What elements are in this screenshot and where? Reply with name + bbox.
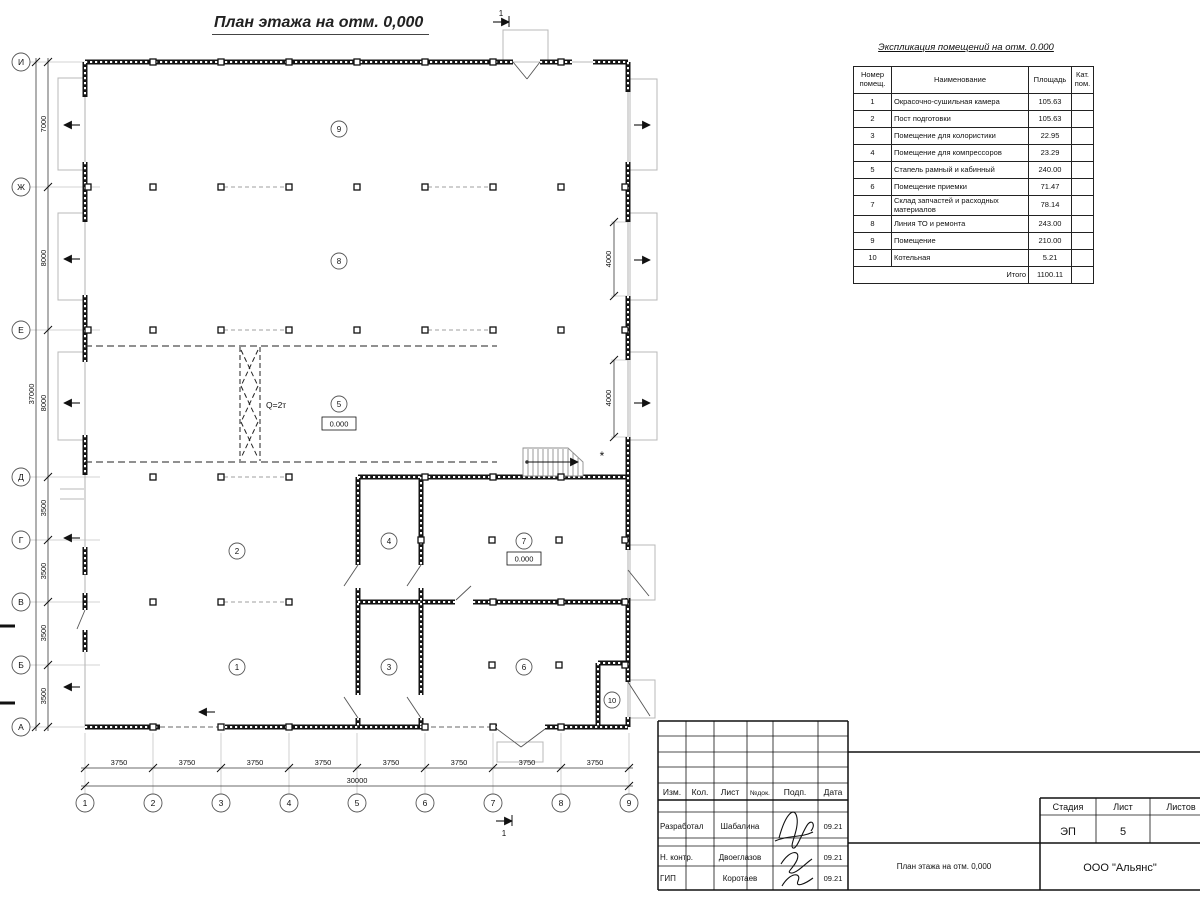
table-row: 8Линия ТО и ремонта243.00 bbox=[854, 216, 1094, 233]
table-cell: Склад запчастей и расходных материалов bbox=[892, 196, 1029, 216]
dim-label: 3750 bbox=[519, 758, 536, 767]
dim-label-gate: 4000 bbox=[604, 251, 613, 268]
dim-label: 3750 bbox=[315, 758, 332, 767]
dim-label: 3750 bbox=[179, 758, 196, 767]
table-cell: Помещение bbox=[892, 233, 1029, 250]
table-cell: 105.63 bbox=[1029, 111, 1072, 128]
room-number: 7 bbox=[522, 537, 527, 546]
total-value: 1100.11 bbox=[1029, 267, 1072, 284]
column-marker bbox=[422, 327, 428, 333]
table-cell: 10 bbox=[854, 250, 892, 267]
table-row: 7Склад запчастей и расходных материалов7… bbox=[854, 196, 1094, 216]
table-cell: 105.63 bbox=[1029, 94, 1072, 111]
table-cell bbox=[1072, 128, 1094, 145]
table-cell bbox=[1072, 179, 1094, 196]
column-marker bbox=[622, 184, 628, 190]
tb-name: Коротаев bbox=[723, 874, 758, 883]
table-cell: Помещение для компрессоров bbox=[892, 145, 1029, 162]
table-cell bbox=[1072, 111, 1094, 128]
column-marker bbox=[218, 474, 224, 480]
tb-role: Н. контр. bbox=[660, 853, 693, 862]
dim-label: 8000 bbox=[39, 395, 48, 412]
column-marker bbox=[286, 59, 292, 65]
table-cell: 243.00 bbox=[1029, 216, 1072, 233]
dim-label: 3500 bbox=[39, 625, 48, 642]
column-marker bbox=[490, 724, 496, 730]
column-marker bbox=[558, 474, 564, 480]
table-cell: 5 bbox=[854, 162, 892, 179]
column-marker bbox=[85, 184, 91, 190]
axis-label: 6 bbox=[423, 798, 428, 808]
dim-label: 3750 bbox=[247, 758, 264, 767]
axis-label: В bbox=[18, 597, 24, 607]
table-row: 6Помещение приемки71.47 bbox=[854, 179, 1094, 196]
column-marker bbox=[558, 184, 564, 190]
axis-label: Б bbox=[18, 660, 24, 670]
table-cell: 78.14 bbox=[1029, 196, 1072, 216]
tb-role: ГИП bbox=[660, 874, 676, 883]
room-number: 3 bbox=[387, 663, 392, 672]
tb-col-header: №док. bbox=[750, 790, 770, 797]
column-marker bbox=[422, 59, 428, 65]
plan-annotations: 0.000 0.000 Q=2т * 1 1 bbox=[0, 9, 605, 838]
axis-label: И bbox=[18, 57, 24, 67]
table-row: 10Котельная5.21 bbox=[854, 250, 1094, 267]
tb-date: 09.21 bbox=[824, 822, 843, 831]
room-number: 10 bbox=[608, 696, 616, 705]
table-cell: Пост подготовки bbox=[892, 111, 1029, 128]
column-marker bbox=[286, 327, 292, 333]
column-marker bbox=[218, 724, 224, 730]
tb-date: 09.21 bbox=[824, 874, 843, 883]
table-cell: 240.00 bbox=[1029, 162, 1072, 179]
column-marker bbox=[490, 474, 496, 480]
table-cell: 9 bbox=[854, 233, 892, 250]
axis-label: 7 bbox=[491, 798, 496, 808]
staircase bbox=[523, 448, 583, 476]
column-marker bbox=[218, 184, 224, 190]
table-cell bbox=[1072, 162, 1094, 179]
drawing-sheet: План этажа на отм. 0,000 Экспликация пом… bbox=[0, 0, 1200, 900]
axis-label: А bbox=[18, 722, 24, 732]
walls bbox=[85, 62, 628, 727]
table-row: 1Окрасочно-сушильная камера105.63 bbox=[854, 94, 1094, 111]
signature bbox=[775, 812, 813, 848]
dim-label: 3500 bbox=[39, 688, 48, 705]
door-swings bbox=[77, 62, 650, 747]
column-marker bbox=[489, 537, 495, 543]
column-marker bbox=[558, 59, 564, 65]
table-cell: 7 bbox=[854, 196, 892, 216]
table-cell: 5.21 bbox=[1029, 250, 1072, 267]
column-marker bbox=[150, 599, 156, 605]
column-marker bbox=[490, 599, 496, 605]
tb-doc-title: План этажа на отм. 0,000 bbox=[897, 862, 992, 871]
room-number: 5 bbox=[337, 400, 342, 409]
tb-name: Шабалина bbox=[721, 822, 760, 831]
axis-label: 2 bbox=[151, 798, 156, 808]
dim-label-gate: 4000 bbox=[604, 390, 613, 407]
table-cell: Котельная bbox=[892, 250, 1029, 267]
col-header-name: Наименование bbox=[892, 67, 1029, 94]
tb-sheet-label: Лист bbox=[1113, 802, 1133, 812]
crane-capacity-label: Q=2т bbox=[266, 400, 286, 410]
column-marker bbox=[422, 474, 428, 480]
axis-label: Е bbox=[18, 325, 24, 335]
axis-label: Д bbox=[18, 472, 24, 482]
column-marker bbox=[489, 662, 495, 668]
table-cell: Помещение для колористики bbox=[892, 128, 1029, 145]
dim-label: 3750 bbox=[111, 758, 128, 767]
column-marker bbox=[150, 59, 156, 65]
column-marker bbox=[354, 59, 360, 65]
table-cell bbox=[1072, 250, 1094, 267]
column-marker bbox=[558, 327, 564, 333]
table-cell: 1 bbox=[854, 94, 892, 111]
axis-label: 1 bbox=[83, 798, 88, 808]
column-marker bbox=[150, 184, 156, 190]
table-row: 3Помещение для колористики22.95 bbox=[854, 128, 1094, 145]
column-marker bbox=[422, 724, 428, 730]
dim-label: 3750 bbox=[383, 758, 400, 767]
table-cell: 2 bbox=[854, 111, 892, 128]
crane-lattice bbox=[241, 350, 258, 458]
column-marker bbox=[218, 599, 224, 605]
level-mark: 0.000 bbox=[515, 555, 534, 564]
dim-label: 7000 bbox=[39, 116, 48, 133]
tb-col-header: Дата bbox=[824, 787, 843, 797]
column-marker bbox=[490, 327, 496, 333]
column-marker bbox=[286, 184, 292, 190]
table-row: 9Помещение210.00 bbox=[854, 233, 1094, 250]
column-marker bbox=[218, 59, 224, 65]
tb-company: ООО "Альянс" bbox=[1083, 862, 1157, 874]
col-header-category: Кат. пом. bbox=[1072, 67, 1094, 94]
column-marker bbox=[150, 327, 156, 333]
table-cell bbox=[1072, 145, 1094, 162]
level-mark: 0.000 bbox=[330, 420, 349, 429]
tb-date: 09.21 bbox=[824, 853, 843, 862]
axis-bubbles-cols: 1 2 3 4 5 6 7 8 9 bbox=[76, 794, 638, 812]
column-marker bbox=[558, 599, 564, 605]
table-row: 5Стапель рамный и кабинный240.00 bbox=[854, 162, 1094, 179]
table-cell bbox=[1072, 94, 1094, 111]
column-marker bbox=[622, 327, 628, 333]
table-cell: 210.00 bbox=[1029, 233, 1072, 250]
table-cell bbox=[1072, 216, 1094, 233]
column-marker bbox=[422, 184, 428, 190]
dim-label: 3750 bbox=[451, 758, 468, 767]
tb-name: Двоеглазов bbox=[719, 853, 762, 862]
section-mark-label: 1 bbox=[499, 9, 504, 18]
explication-body: 1Окрасочно-сушильная камера105.632Пост п… bbox=[854, 94, 1094, 267]
table-cell: 6 bbox=[854, 179, 892, 196]
column-marker bbox=[558, 724, 564, 730]
table-cell: 23.29 bbox=[1029, 145, 1072, 162]
room-number: 2 bbox=[235, 547, 240, 556]
room-number: 6 bbox=[522, 663, 527, 672]
tb-col-header: Подп. bbox=[784, 787, 807, 797]
table-cell: Стапель рамный и кабинный bbox=[892, 162, 1029, 179]
dim-label: 3500 bbox=[39, 563, 48, 580]
section-mark-label: 1 bbox=[502, 829, 507, 838]
total-category-cell bbox=[1072, 267, 1094, 284]
column-marker bbox=[150, 474, 156, 480]
dim-label-total: 30000 bbox=[347, 776, 368, 785]
table-cell: 22.95 bbox=[1029, 128, 1072, 145]
tb-role: Разработал bbox=[660, 822, 704, 831]
tb-col-header: Кол. bbox=[692, 787, 709, 797]
axis-label: 4 bbox=[287, 798, 292, 808]
axis-leader-lines bbox=[30, 62, 629, 795]
room-markers: 9 8 5 2 4 7 1 3 6 10 bbox=[229, 121, 620, 708]
dim-label: 3750 bbox=[587, 758, 604, 767]
column-marker bbox=[354, 184, 360, 190]
table-cell: Окрасочно-сушильная камера bbox=[892, 94, 1029, 111]
dim-label: 8000 bbox=[39, 250, 48, 267]
table-cell: 3 bbox=[854, 128, 892, 145]
room-number: 8 bbox=[337, 257, 342, 266]
column-marker bbox=[622, 662, 628, 668]
tb-sheets-label: Листов bbox=[1166, 802, 1195, 812]
axis-label: 5 bbox=[355, 798, 360, 808]
axis-label: Ж bbox=[17, 182, 25, 192]
column-marker bbox=[490, 59, 496, 65]
col-header-number: Номер помещ. bbox=[854, 67, 892, 94]
column-marker bbox=[85, 327, 91, 333]
total-label: Итого bbox=[854, 267, 1029, 284]
table-cell bbox=[1072, 196, 1094, 216]
table-row: 4Помещение для компрессоров23.29 bbox=[854, 145, 1094, 162]
axis-label: 8 bbox=[559, 798, 564, 808]
dim-label: 3500 bbox=[39, 500, 48, 517]
column-marker bbox=[286, 724, 292, 730]
title-block: Изм. Кол. Лист №док. Подп. Дата Разработ… bbox=[658, 721, 1200, 890]
column-marker bbox=[354, 327, 360, 333]
asterisk-mark: * bbox=[600, 449, 605, 463]
room-number: 9 bbox=[337, 125, 342, 134]
table-cell: Линия ТО и ремонта bbox=[892, 216, 1029, 233]
axis-label: 3 bbox=[219, 798, 224, 808]
column-marker bbox=[286, 474, 292, 480]
explication-table: Номер помещ. Наименование Площадь Кат. п… bbox=[853, 66, 1094, 284]
column-marker bbox=[418, 537, 424, 543]
signature bbox=[781, 853, 812, 873]
column-marker bbox=[286, 599, 292, 605]
table-header-row: Номер помещ. Наименование Площадь Кат. п… bbox=[854, 67, 1094, 94]
signature bbox=[782, 875, 813, 886]
axis-label: Г bbox=[19, 535, 24, 545]
column-marker bbox=[622, 537, 628, 543]
tb-stage-value: ЭП bbox=[1060, 826, 1076, 838]
col-header-area: Площадь bbox=[1029, 67, 1072, 94]
table-row: 2Пост подготовки105.63 bbox=[854, 111, 1094, 128]
column-marker bbox=[622, 599, 628, 605]
table-cell: Помещение приемки bbox=[892, 179, 1029, 196]
tb-stage-label: Стадия bbox=[1053, 802, 1084, 812]
total-row: Итого 1100.11 bbox=[854, 267, 1094, 284]
room-number: 4 bbox=[387, 537, 392, 546]
zone-dashed-lines bbox=[85, 187, 497, 602]
table-cell: 8 bbox=[854, 216, 892, 233]
room-number: 1 bbox=[235, 663, 240, 672]
tb-col-header: Лист bbox=[721, 787, 740, 797]
dim-label-total: 37000 bbox=[27, 384, 36, 405]
column-marker bbox=[218, 327, 224, 333]
table-cell bbox=[1072, 233, 1094, 250]
column-marker bbox=[150, 724, 156, 730]
column-marker bbox=[556, 537, 562, 543]
tb-col-header: Изм. bbox=[663, 787, 681, 797]
table-cell: 4 bbox=[854, 145, 892, 162]
column-marker bbox=[556, 662, 562, 668]
tb-sheet-value: 5 bbox=[1120, 826, 1126, 838]
axis-label: 9 bbox=[627, 798, 632, 808]
column-marker bbox=[490, 184, 496, 190]
table-cell: 71.47 bbox=[1029, 179, 1072, 196]
